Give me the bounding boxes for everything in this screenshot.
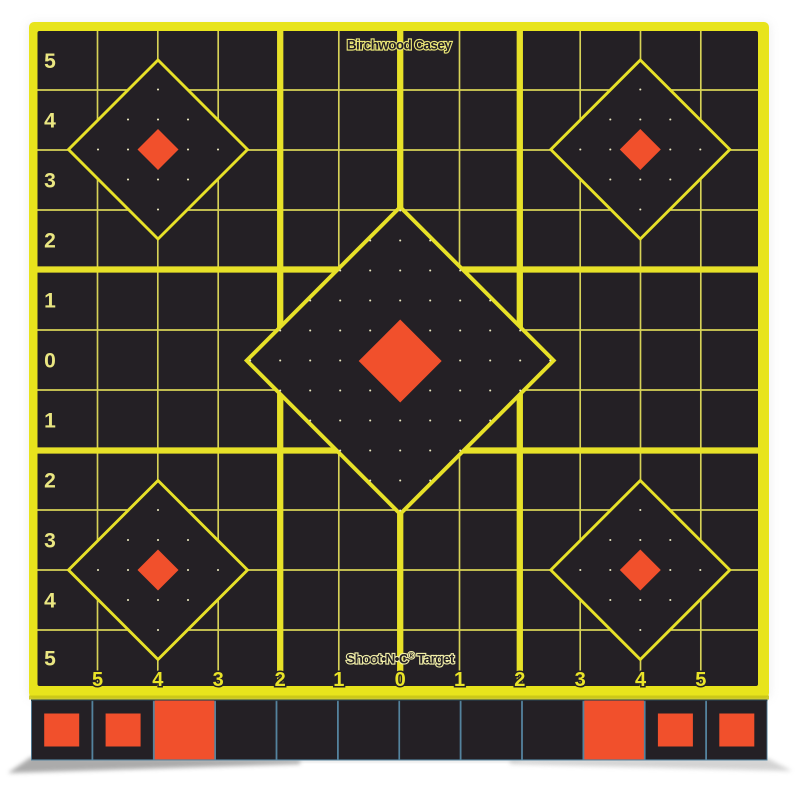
svg-text:4: 4 <box>152 669 164 691</box>
svg-text:5: 5 <box>44 50 56 73</box>
svg-text:3: 3 <box>44 170 56 193</box>
svg-text:4: 4 <box>635 669 647 691</box>
svg-text:4: 4 <box>44 590 56 613</box>
svg-text:0: 0 <box>44 350 56 373</box>
svg-text:1: 1 <box>44 410 56 433</box>
svg-text:1: 1 <box>44 290 56 313</box>
svg-text:5: 5 <box>44 648 56 671</box>
svg-text:Birchwood Casey: Birchwood Casey <box>347 38 452 53</box>
svg-text:4: 4 <box>44 110 56 133</box>
svg-text:1: 1 <box>454 669 465 691</box>
svg-text:5: 5 <box>92 669 103 691</box>
svg-text:5: 5 <box>695 669 706 691</box>
svg-text:3: 3 <box>575 669 586 691</box>
svg-text:2: 2 <box>44 230 56 253</box>
svg-text:2: 2 <box>514 669 525 691</box>
svg-text:3: 3 <box>213 669 224 691</box>
svg-text:0: 0 <box>395 669 406 691</box>
svg-text:1: 1 <box>333 669 344 691</box>
svg-text:Shoot•N•C® Target: Shoot•N•C® Target <box>346 651 455 667</box>
svg-text:2: 2 <box>44 470 56 493</box>
svg-text:3: 3 <box>44 530 56 553</box>
svg-text:2: 2 <box>275 669 286 691</box>
